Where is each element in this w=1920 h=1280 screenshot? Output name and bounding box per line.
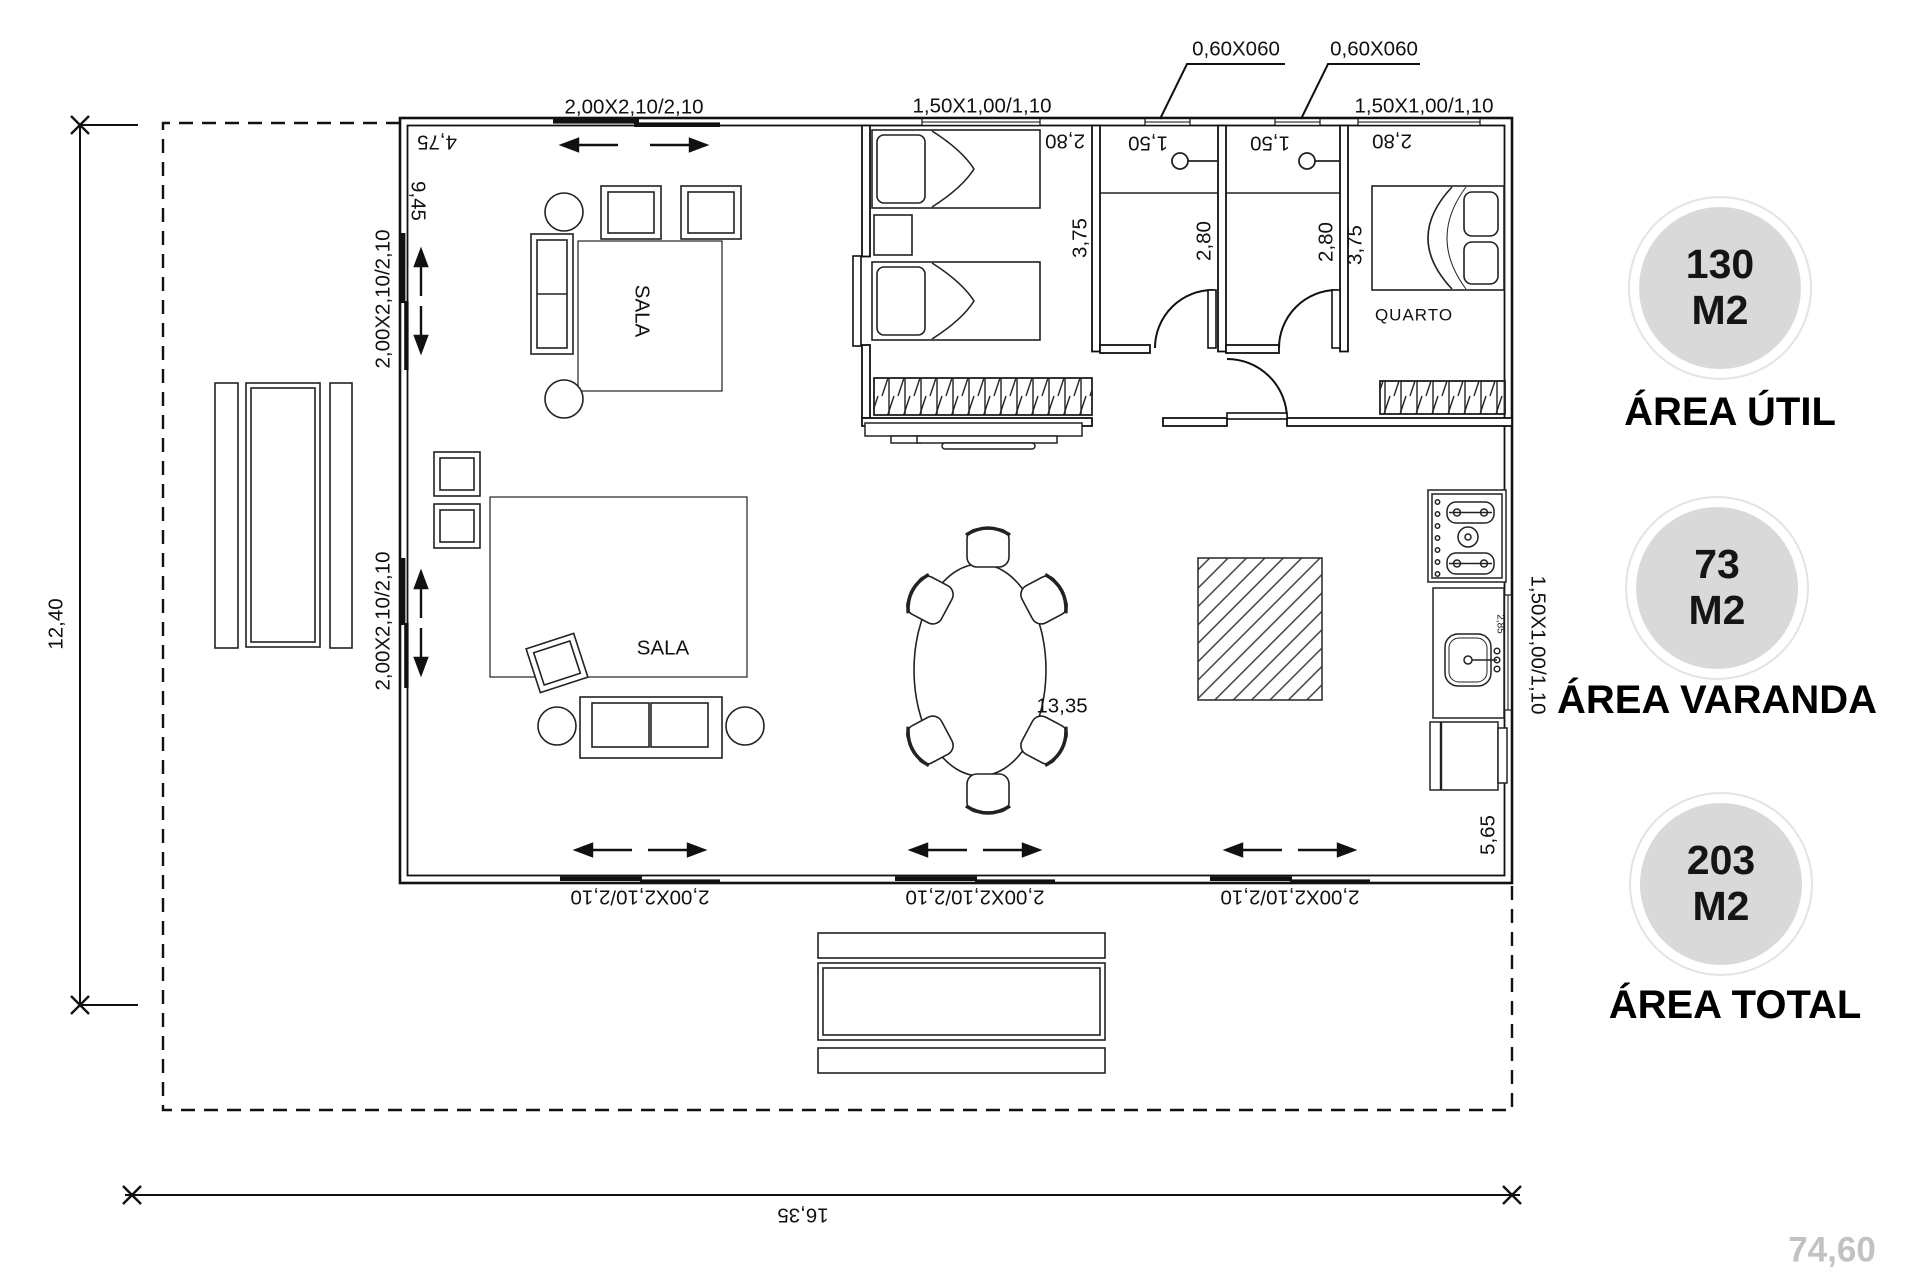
sofa-icon (580, 697, 722, 758)
dim-bedroom-depth: 3,75 (1068, 218, 1091, 258)
room-quarto-label: QUARTO (1375, 305, 1453, 324)
area-total-badge: 203 M2 (1629, 792, 1813, 976)
bench-icon (818, 933, 1105, 958)
door-left-lower-label: 2,00X2,10/2,10 (371, 551, 394, 690)
armchair-icon (601, 186, 661, 239)
sliding-door-top-icon (553, 119, 639, 124)
corner-note: 74,60 (1788, 1230, 1876, 1269)
fridge-icon (1430, 722, 1507, 790)
dim-bedroom-width: 2,80 (1045, 130, 1085, 153)
dim-sala-depth: 9,45 (407, 181, 430, 221)
dim-quarto-depth: 3,75 (1343, 225, 1366, 265)
varanda-table-left (215, 383, 352, 648)
area-varanda-value: 73 (1694, 542, 1740, 588)
area-total-unit: M2 (1693, 884, 1750, 930)
kitchen-furniture (1428, 490, 1507, 790)
dim-quarto-width: 2,80 (1372, 130, 1412, 153)
area-util-label: ÁREA ÚTIL (1550, 390, 1910, 435)
table-icon (818, 963, 1105, 1040)
closet-icon (874, 378, 1092, 415)
bench-icon (330, 383, 352, 648)
bench-icon (215, 383, 238, 648)
dim-kitchen-counter: 2,85 (1494, 614, 1505, 634)
room-sala-lower-label: SALA (637, 636, 690, 659)
sink-icon (1433, 588, 1504, 718)
area-varanda-unit: M2 (1689, 588, 1746, 634)
room-sala-upper-label: SALA (631, 285, 654, 338)
nightstand-icon (874, 215, 912, 255)
area-util-value: 130 (1686, 242, 1754, 288)
sofa-icon (531, 234, 573, 354)
dim-bath2-depth: 2,80 (1314, 222, 1337, 262)
area-varanda-label: ÁREA VARANDA (1537, 678, 1897, 723)
window-bath2-label: 0,60X060 (1330, 37, 1418, 60)
window-bedroom-label: 1,50X1,00/1,10 (912, 94, 1051, 117)
armchair-icon (681, 186, 741, 239)
hatched-area (1198, 558, 1322, 700)
single-bed-icon (872, 130, 1040, 208)
dim-bath1-width: 1,50 (1128, 132, 1168, 155)
sliding-door-left1-icon (401, 233, 406, 303)
table-icon (246, 383, 320, 647)
window-quarto-label: 1,50X1,00/1,10 (1354, 94, 1493, 117)
armchair-icon (434, 452, 480, 496)
side-table-icon (726, 707, 764, 745)
floor-plan-canvas: 2,00X2,10/2,10 1,50X1,00/1,10 0,60X060 0… (0, 0, 1920, 1280)
varanda-table-bottom (818, 933, 1105, 1073)
door-left-upper-label: 2,00X2,10/2,10 (371, 229, 394, 368)
sliding-door-bottom2-icon (895, 876, 977, 881)
side-table-icon (545, 193, 583, 231)
bench-icon (818, 1048, 1105, 1073)
dim-living-width: 13,35 (1036, 694, 1087, 717)
door-top-label: 2,00X2,10/2,10 (564, 95, 703, 118)
side-table-icon (538, 707, 576, 745)
closet-icon (1380, 381, 1505, 414)
door-bottom3-label: 2,00X2,10/2,10 (1220, 886, 1359, 909)
double-bed-icon (1372, 186, 1504, 290)
sliding-door-left2-icon (401, 558, 406, 625)
dim-bath1-depth: 2,80 (1192, 221, 1215, 261)
window-bath1-label: 0,60X060 (1192, 37, 1280, 60)
area-varanda-badge: 73 M2 (1625, 496, 1809, 680)
area-total-label: ÁREA TOTAL (1555, 983, 1915, 1028)
sliding-door-bottom3-icon (1210, 876, 1292, 881)
floor-plan-drawing: 2,00X2,10/2,10 1,50X1,00/1,10 0,60X060 0… (0, 0, 1920, 1280)
sliding-door-bedroom-icon (853, 256, 861, 346)
dim-kitchen-side: 5,65 (1476, 815, 1499, 855)
door-bottom1-label: 2,00X2,10/2,10 (570, 886, 709, 909)
sliding-door-bottom1-icon (560, 876, 642, 881)
door-bottom2-label: 2,00X2,10/2,10 (905, 886, 1044, 909)
area-util-unit: M2 (1692, 288, 1749, 334)
area-util-badge: 130 M2 (1628, 196, 1812, 380)
stove-icon (1428, 490, 1506, 582)
single-bed-icon (872, 262, 1040, 340)
dim-plot-height: 12,40 (44, 598, 67, 649)
chair-icon (966, 774, 1010, 813)
dim-plot-width: 16,35 (777, 1204, 828, 1227)
area-total-value: 203 (1687, 838, 1755, 884)
side-table-icon (545, 380, 583, 418)
dim-sala-width: 4,75 (417, 131, 457, 154)
armchair-icon (434, 504, 480, 548)
chair-icon (966, 528, 1010, 567)
dim-bath2-width: 1,50 (1250, 132, 1290, 155)
